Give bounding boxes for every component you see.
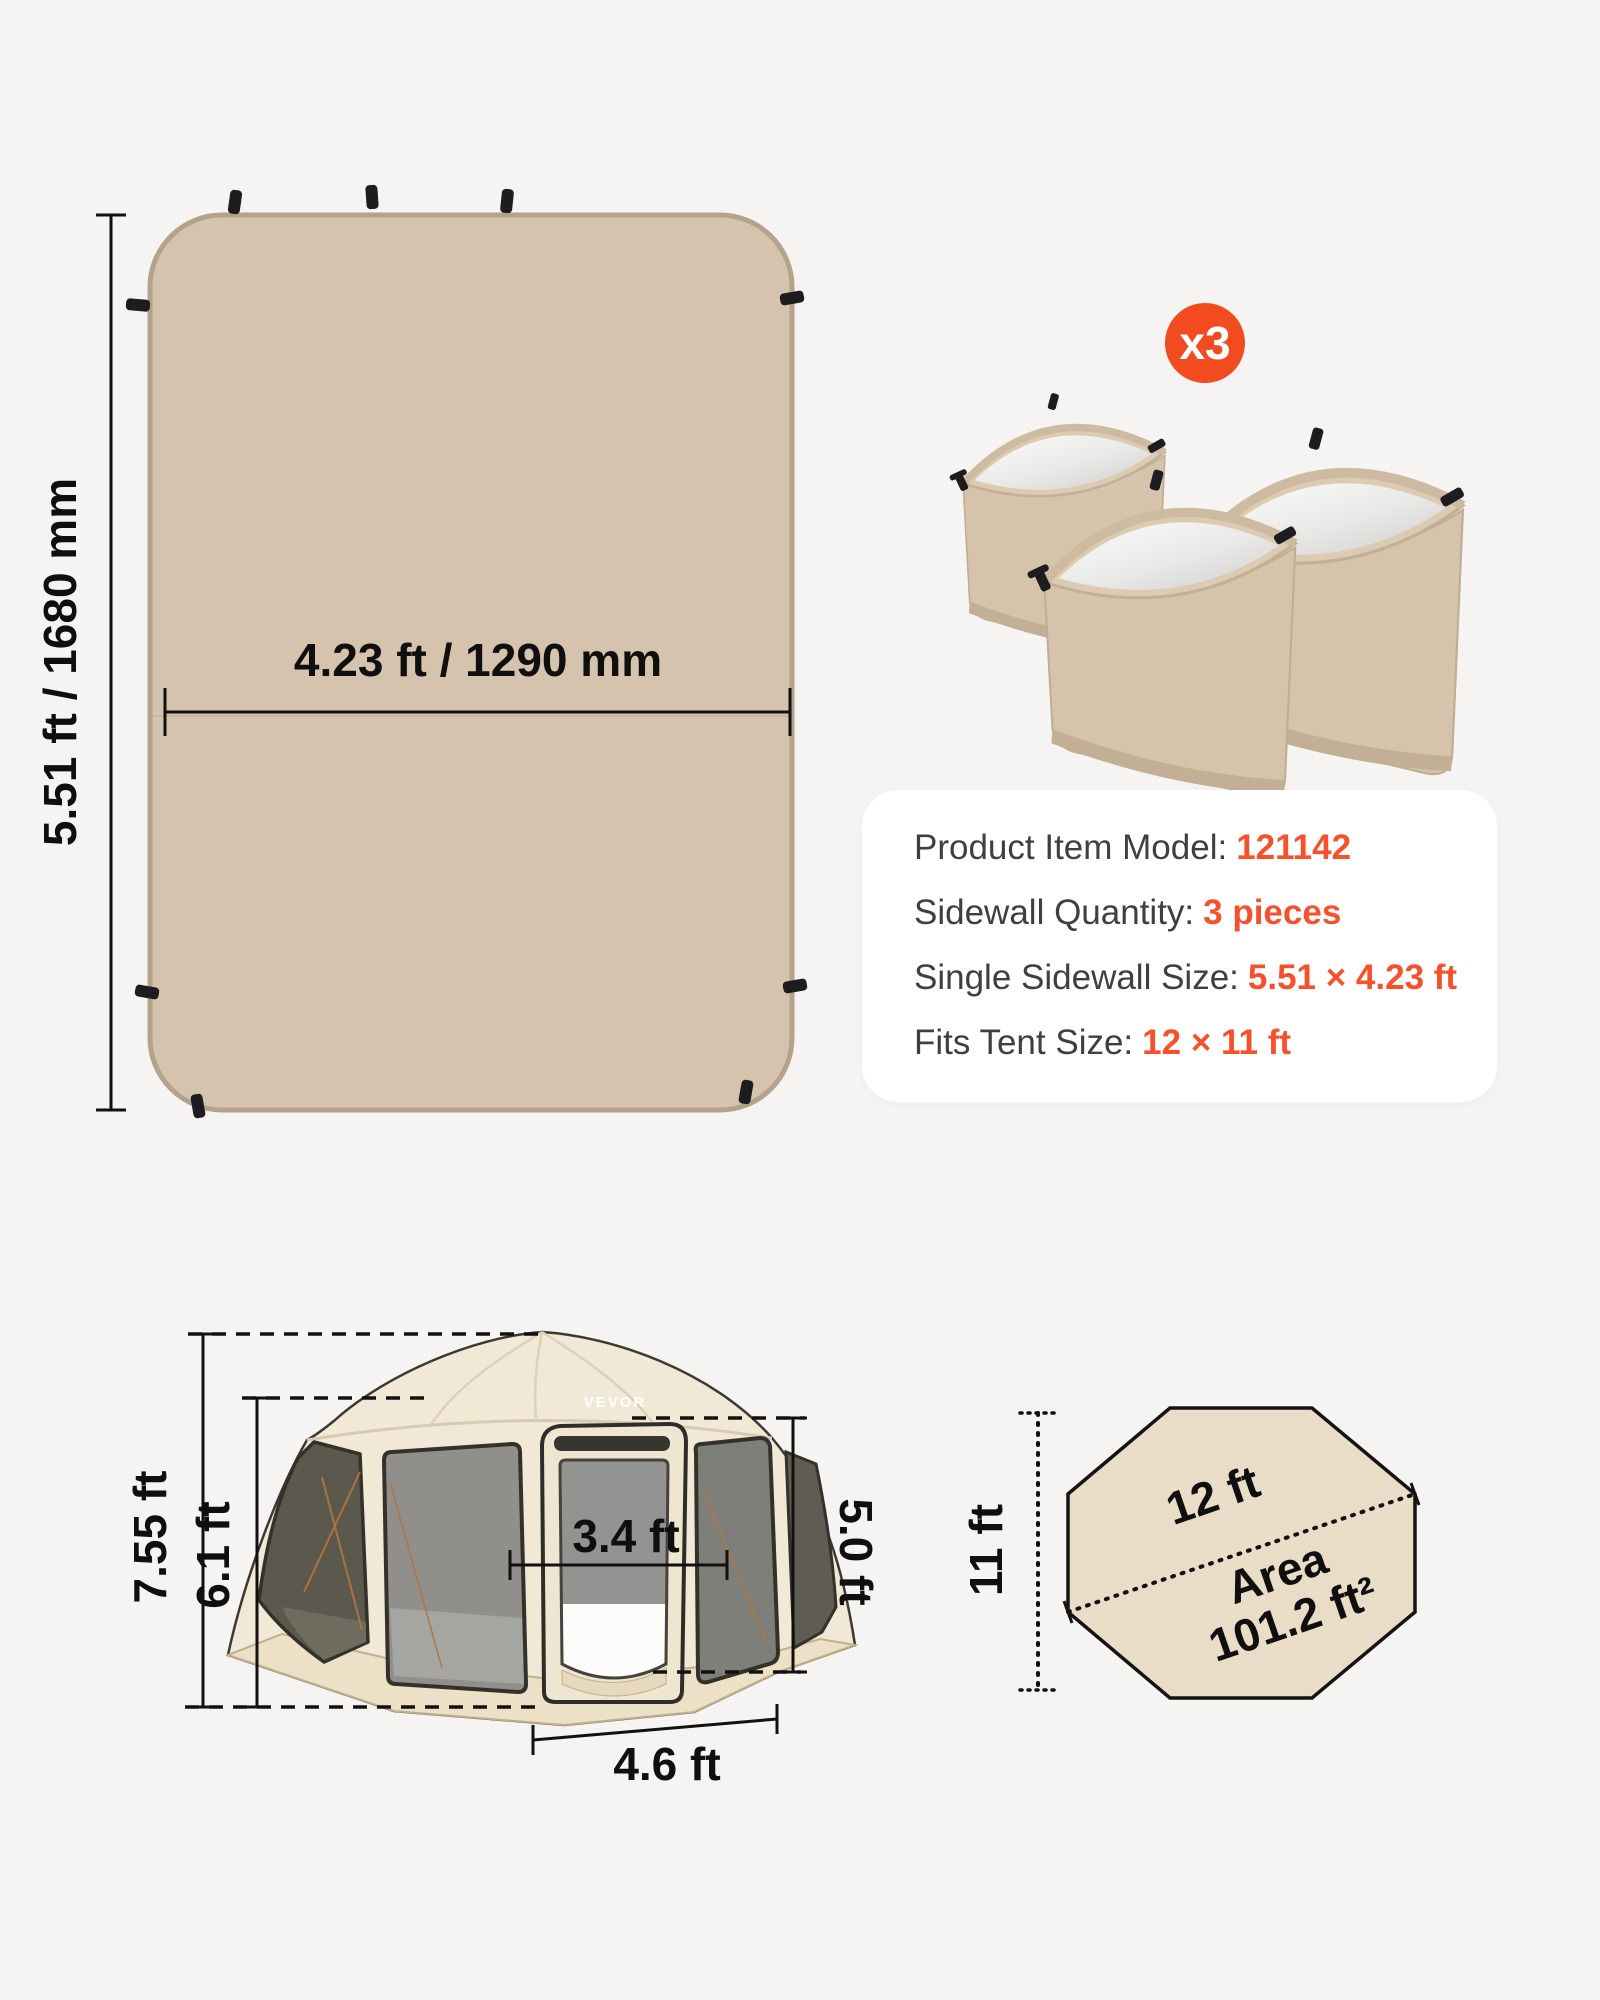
spec-label: Fits Tent Size: (914, 1023, 1133, 1062)
tent-total-height-label: 7.55 ft (132, 1471, 176, 1604)
spec-row-size: Single Sidewall Size:5.51 × 4.23 ft (914, 945, 1497, 1010)
spec-row-quantity: Sidewall Quantity:3 pieces (914, 880, 1497, 945)
spec-label: Product Item Model: (914, 828, 1227, 867)
spec-label: Sidewall Quantity: (914, 893, 1194, 932)
spec-card: Product Item Model:121142 Sidewall Quant… (862, 790, 1497, 1102)
quantity-badge-label: x3 (1179, 316, 1230, 370)
footprint-diagram: 12 ft Area 101.2 ft² 11 ft (950, 1380, 1510, 1720)
sidewall-panel-diagram: 5.51 ft / 1680 mm 4.23 ft / 1290 mm (40, 180, 840, 1190)
rolled-door-flap (554, 1436, 670, 1451)
footprint-depth-label: 11 ft (960, 1504, 1012, 1596)
spec-row-fits: Fits Tent Size:12 × 11 ft (914, 1010, 1497, 1075)
door-opening (562, 1604, 666, 1678)
brand-logo: VEVOR (584, 1394, 647, 1411)
mesh-panel-front-right (696, 1438, 778, 1682)
folded-sidewalls-illustration (930, 380, 1520, 800)
spec-row-model: Product Item Model:121142 (914, 815, 1497, 880)
quantity-badge: x3 (1165, 303, 1245, 383)
panel-height-dimension: 5.51 ft / 1680 mm (40, 215, 126, 1110)
panel-width-label: 4.23 ft / 1290 mm (294, 634, 662, 686)
tent-illustration: VEVOR 7.55 ft 6.1 ft 3.4 ft 5.0 ft 4.6 f… (132, 1312, 892, 1892)
spec-label: Single Sidewall Size: (914, 958, 1239, 997)
spec-value: 5.51 × 4.23 ft (1248, 958, 1457, 997)
tent-door-height-label: 5.0 ft (830, 1498, 882, 1605)
mesh-panel-floor-view (390, 1608, 524, 1684)
infographic-canvas: { "title": "Tent sidewall dimensions inf… (0, 0, 1600, 2000)
spec-value: 121142 (1236, 828, 1351, 867)
tent-wall-height-label: 6.1 ft (187, 1501, 239, 1608)
spec-value: 3 pieces (1203, 893, 1341, 932)
tent-door-width-label: 3.4 ft (572, 1510, 679, 1562)
panel-height-label: 5.51 ft / 1680 mm (40, 478, 86, 846)
tent-panel-width-label: 4.6 ft (613, 1738, 720, 1790)
door-panel (542, 1424, 686, 1702)
spec-value: 12 × 11 ft (1142, 1023, 1291, 1062)
